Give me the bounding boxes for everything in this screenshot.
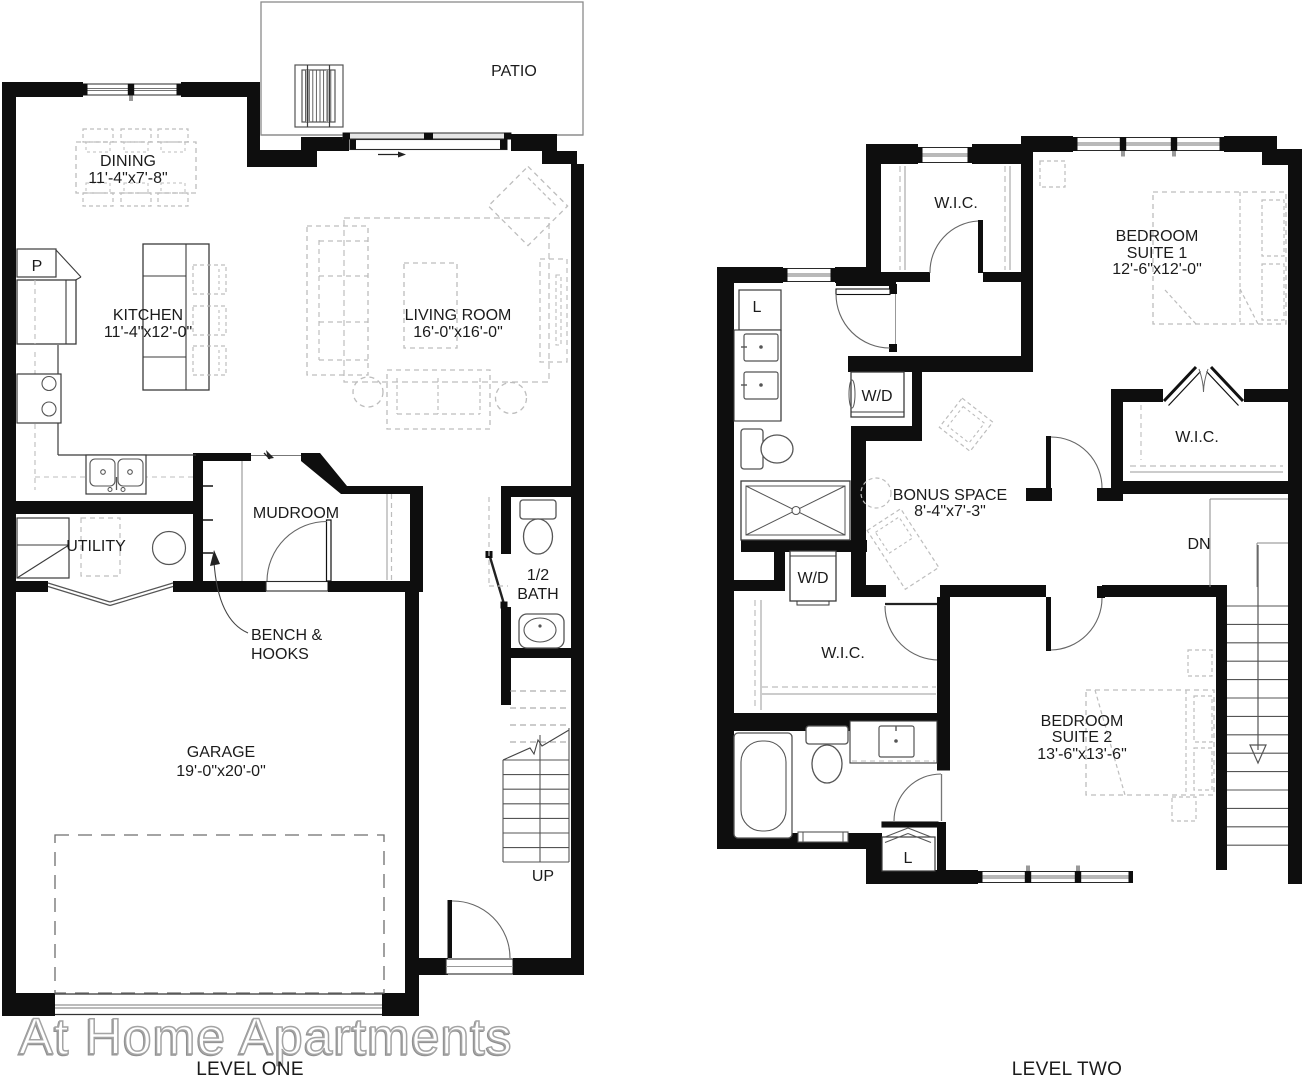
- svg-text:BATH: BATH: [517, 586, 558, 603]
- svg-text:W.I.C.: W.I.C.: [821, 645, 865, 662]
- svg-text:P: P: [32, 258, 43, 275]
- svg-text:SUITE 2: SUITE 2: [1052, 729, 1113, 746]
- svg-text:13'-6"x13'-6": 13'-6"x13'-6": [1037, 746, 1127, 763]
- svg-text:L: L: [904, 850, 913, 867]
- svg-text:W/D: W/D: [861, 388, 892, 405]
- svg-text:At Home Apartments: At Home Apartments: [19, 1008, 513, 1065]
- svg-text:BEDROOM: BEDROOM: [1116, 228, 1199, 245]
- svg-text:12'-6"x12'-0": 12'-6"x12'-0": [1112, 261, 1202, 278]
- svg-text:DN: DN: [1187, 536, 1210, 553]
- svg-text:SUITE 1: SUITE 1: [1127, 245, 1188, 262]
- svg-text:W/D: W/D: [797, 570, 828, 587]
- svg-text:LEVEL TWO: LEVEL TWO: [1012, 1059, 1122, 1080]
- svg-text:KITCHEN: KITCHEN: [113, 307, 183, 324]
- svg-text:W.I.C.: W.I.C.: [934, 195, 978, 212]
- svg-text:L: L: [753, 299, 762, 316]
- svg-text:PATIO: PATIO: [491, 63, 537, 80]
- svg-text:BEDROOM: BEDROOM: [1041, 713, 1124, 730]
- svg-text:GARAGE: GARAGE: [187, 744, 255, 761]
- svg-text:BONUS SPACE: BONUS SPACE: [893, 487, 1007, 504]
- svg-text:MUDROOM: MUDROOM: [253, 505, 339, 522]
- svg-text:16'-0"x16'-0": 16'-0"x16'-0": [413, 324, 503, 341]
- svg-text:LEVEL ONE: LEVEL ONE: [196, 1059, 304, 1080]
- svg-text:11'-4"x7'-8": 11'-4"x7'-8": [88, 170, 167, 187]
- svg-text:BENCH &: BENCH &: [251, 627, 322, 644]
- svg-text:19'-0"x20'-0": 19'-0"x20'-0": [176, 763, 266, 780]
- svg-text:8'-4"x7'-3": 8'-4"x7'-3": [914, 503, 986, 520]
- svg-text:W.I.C.: W.I.C.: [1175, 429, 1219, 446]
- svg-text:DINING: DINING: [100, 153, 156, 170]
- svg-text:LIVING ROOM: LIVING ROOM: [405, 307, 512, 324]
- svg-text:11'-4"x12'-0": 11'-4"x12'-0": [104, 324, 192, 341]
- svg-text:UTILITY: UTILITY: [66, 538, 126, 555]
- svg-text:HOOKS: HOOKS: [251, 646, 309, 663]
- svg-text:1/2: 1/2: [527, 567, 549, 584]
- svg-text:UP: UP: [532, 868, 554, 885]
